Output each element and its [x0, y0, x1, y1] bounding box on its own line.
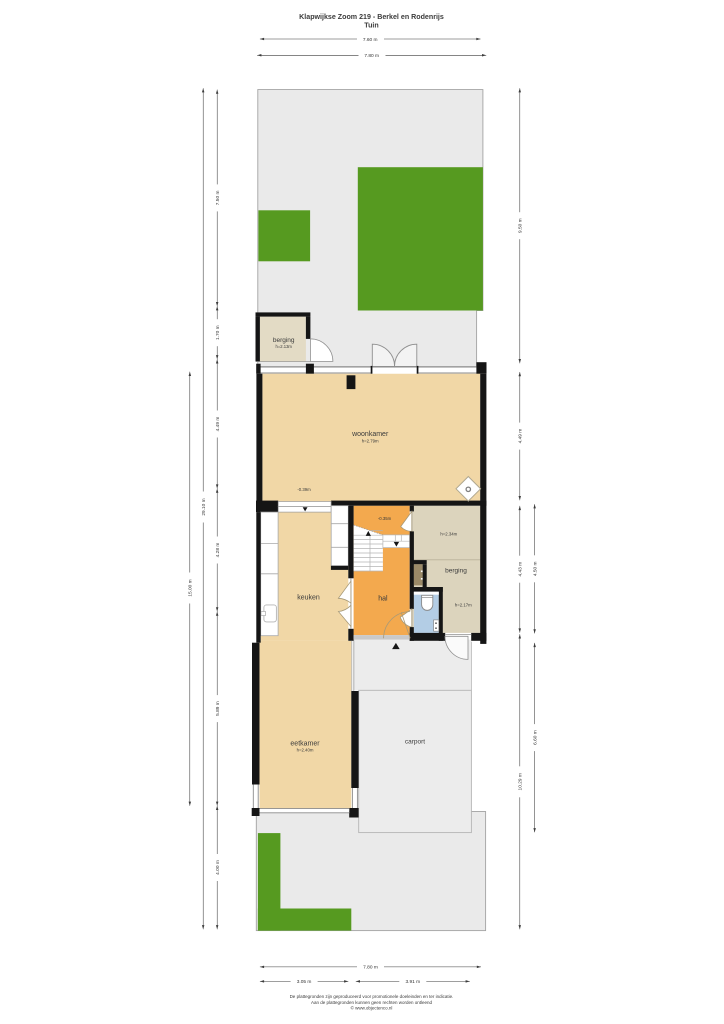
svg-text:5.89 m: 5.89 m: [215, 701, 221, 716]
svg-text:berging: berging: [445, 568, 467, 575]
svg-text:h=2.13m: h=2.13m: [275, 344, 292, 349]
svg-text:4.28 m: 4.28 m: [215, 543, 221, 558]
svg-text:9.50 m: 9.50 m: [518, 218, 524, 233]
svg-text:7.60 m: 7.60 m: [363, 37, 378, 43]
svg-text:1.70 m: 1.70 m: [215, 325, 221, 340]
svg-text:Tuin: Tuin: [364, 22, 378, 30]
svg-text:4.50 m: 4.50 m: [532, 561, 538, 576]
svg-text:h=2.79m: h=2.79m: [362, 439, 379, 444]
svg-text:7.80 m: 7.80 m: [364, 53, 379, 59]
svg-text:h=2.17m: h=2.17m: [455, 603, 472, 608]
svg-text:-0.39m: -0.39m: [297, 487, 311, 492]
svg-text:De plattegronden zijn geproduc: De plattegronden zijn geproduceerd voor …: [290, 994, 454, 999]
svg-text:© www.objectenco.nl: © www.objectenco.nl: [351, 1004, 393, 1010]
svg-text:Aan de plattegronden kunnen ge: Aan de plattegronden kunnen geen rechten…: [311, 1000, 433, 1005]
svg-text:4.49 m: 4.49 m: [518, 429, 524, 444]
svg-text:h=2.40m: h=2.40m: [297, 747, 314, 752]
svg-text:woonkamer: woonkamer: [351, 431, 389, 438]
svg-text:3.91 m: 3.91 m: [405, 979, 420, 985]
svg-text:4.49 m: 4.49 m: [215, 417, 221, 432]
svg-text:6.60 m: 6.60 m: [532, 730, 538, 745]
svg-text:4.43 m: 4.43 m: [518, 562, 524, 577]
svg-text:hal: hal: [378, 596, 388, 603]
svg-text:carport: carport: [405, 739, 425, 746]
svg-text:7.80 m: 7.80 m: [363, 965, 378, 971]
svg-text:h=2.34m: h=2.34m: [440, 532, 457, 537]
svg-text:4.00 m: 4.00 m: [215, 860, 221, 875]
svg-text:keuken: keuken: [297, 595, 320, 602]
svg-text:15.00 m: 15.00 m: [188, 579, 194, 596]
svg-text:Klapwijkse Zoom 219 - Berkel e: Klapwijkse Zoom 219 - Berkel en Rodenrij…: [299, 13, 444, 21]
svg-text:29.10 m: 29.10 m: [201, 498, 207, 515]
svg-text:10.29 m: 10.29 m: [518, 773, 524, 790]
svg-text:3.05 m: 3.05 m: [297, 979, 312, 985]
svg-text:-0.35m: -0.35m: [378, 516, 392, 521]
svg-text:berging: berging: [273, 337, 295, 344]
svg-text:7.50 m: 7.50 m: [215, 191, 221, 206]
